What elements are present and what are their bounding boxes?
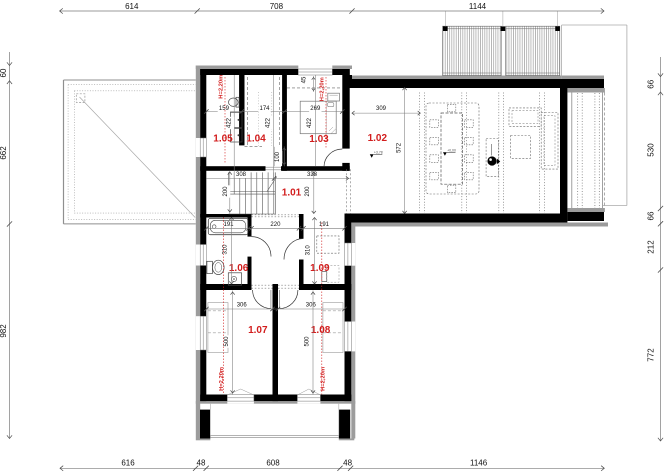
svg-text:708: 708: [270, 2, 284, 11]
svg-text:H=2,20m: H=2,20m: [319, 77, 325, 101]
svg-text:191: 191: [319, 222, 330, 228]
svg-text:309: 309: [376, 106, 387, 112]
svg-text:+3,78: +3,78: [374, 151, 383, 155]
svg-text:100: 100: [275, 151, 281, 162]
svg-text:H=2,20m: H=2,20m: [219, 367, 225, 391]
svg-text:772: 772: [647, 348, 656, 362]
svg-text:1.02: 1.02: [368, 133, 388, 144]
svg-text:306: 306: [306, 303, 317, 309]
svg-text:662: 662: [0, 146, 8, 160]
svg-text:1.08: 1.08: [311, 325, 331, 336]
svg-text:66: 66: [647, 211, 656, 220]
svg-text:212: 212: [647, 240, 656, 254]
svg-text:+0,00: +0,00: [447, 149, 456, 153]
svg-text:200: 200: [223, 186, 229, 197]
svg-text:60: 60: [0, 68, 8, 77]
svg-text:1.04: 1.04: [246, 134, 266, 145]
svg-text:614: 614: [125, 2, 139, 11]
svg-text:422: 422: [307, 117, 313, 128]
svg-text:310: 310: [306, 245, 312, 256]
svg-text:H=2,20m: H=2,20m: [218, 75, 224, 99]
svg-text:608: 608: [266, 458, 280, 467]
svg-text:269: 269: [310, 106, 321, 112]
svg-text:572: 572: [397, 142, 403, 153]
svg-text:500: 500: [224, 336, 230, 347]
svg-text:1146: 1146: [470, 458, 488, 467]
svg-text:1.07: 1.07: [248, 325, 268, 336]
svg-text:1.05: 1.05: [213, 134, 233, 145]
svg-text:422: 422: [227, 117, 233, 128]
svg-text:500: 500: [304, 336, 310, 347]
svg-text:1144: 1144: [469, 2, 487, 11]
svg-text:45: 45: [302, 76, 308, 83]
svg-text:308: 308: [236, 172, 247, 178]
svg-text:422: 422: [266, 117, 272, 128]
svg-text:306: 306: [237, 303, 248, 309]
svg-text:530: 530: [647, 143, 656, 157]
svg-text:616: 616: [121, 458, 135, 467]
svg-text:48: 48: [197, 458, 206, 467]
svg-text:338: 338: [307, 172, 318, 178]
svg-text:220: 220: [270, 222, 281, 228]
svg-text:191: 191: [223, 222, 234, 228]
svg-text:H=2,20m: H=2,20m: [320, 367, 326, 391]
svg-text:982: 982: [0, 324, 8, 338]
svg-text:174: 174: [259, 106, 270, 112]
svg-text:66: 66: [647, 79, 656, 88]
svg-text:1.06: 1.06: [229, 263, 249, 274]
svg-text:159: 159: [219, 106, 230, 112]
svg-text:48: 48: [343, 458, 352, 467]
svg-text:200: 200: [305, 186, 311, 197]
svg-text:1.01: 1.01: [282, 188, 302, 199]
svg-text:1.09: 1.09: [310, 263, 330, 274]
